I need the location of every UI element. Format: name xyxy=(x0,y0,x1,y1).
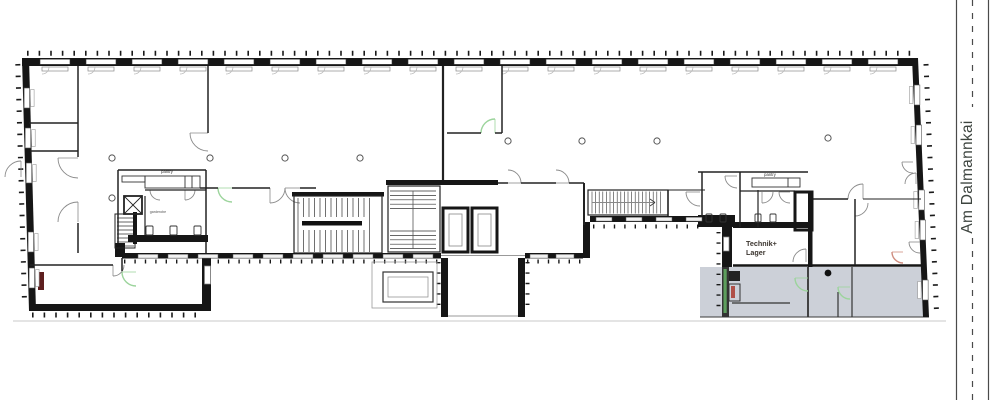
window xyxy=(592,59,622,64)
window-sill xyxy=(318,67,344,71)
window-sill xyxy=(870,67,896,71)
skylight-table xyxy=(383,272,433,302)
window xyxy=(270,59,300,64)
pantry-counter xyxy=(752,178,800,187)
window-sill xyxy=(31,90,35,107)
door-swing-arc xyxy=(556,170,569,183)
hedge-strip xyxy=(724,269,727,313)
window xyxy=(724,237,730,251)
wc-fixture xyxy=(194,226,201,235)
street-strip: Am Dalmannkai xyxy=(957,0,989,400)
street-name-label: Am Dalmannkai xyxy=(959,120,976,233)
stair-treads xyxy=(117,191,660,252)
window xyxy=(919,190,925,210)
window xyxy=(822,59,852,64)
pantry-label-right: pantry xyxy=(764,172,777,177)
floor-plan: pantry garderobe pantry Technik+ Lager A… xyxy=(0,0,1000,400)
light-court xyxy=(372,258,525,317)
window-sill xyxy=(824,67,850,71)
door-swing-arc xyxy=(909,242,920,253)
door-swing-arc xyxy=(779,192,790,203)
window xyxy=(684,59,714,64)
elevator-core-left xyxy=(124,196,142,214)
window xyxy=(638,59,668,64)
window-sill xyxy=(33,165,37,182)
window-sill xyxy=(548,67,574,71)
window xyxy=(28,232,34,252)
door-swing-arc xyxy=(762,192,773,203)
window-sill xyxy=(502,67,528,71)
column xyxy=(109,195,115,201)
door-swing-arc xyxy=(122,272,136,286)
column xyxy=(207,155,213,161)
window-sill xyxy=(36,270,40,287)
wall-jog xyxy=(583,222,590,258)
window xyxy=(500,59,530,64)
window-sill xyxy=(456,67,482,71)
door-swing-arc xyxy=(686,192,700,206)
door-swing-arc xyxy=(793,249,806,262)
window-sill xyxy=(323,254,343,258)
door-swing-arc xyxy=(725,176,737,188)
window-sill xyxy=(918,282,922,299)
window-sill xyxy=(778,67,804,71)
door-swing-arc xyxy=(892,252,903,263)
column xyxy=(282,155,288,161)
window xyxy=(868,59,898,64)
window-sill xyxy=(911,127,915,144)
window-sill xyxy=(233,254,253,258)
wc-fixture xyxy=(170,226,177,235)
column xyxy=(654,138,660,144)
door-swing-arc xyxy=(190,133,208,151)
window-sill xyxy=(42,67,68,71)
door-swing-arc xyxy=(58,158,78,178)
window-sill xyxy=(383,254,403,258)
window xyxy=(25,128,31,148)
wc-fixture xyxy=(146,226,153,235)
door-swing-arc xyxy=(58,202,78,222)
window-sill xyxy=(134,67,160,71)
door-swing-arc xyxy=(481,119,495,133)
red-marker xyxy=(731,286,735,298)
window xyxy=(316,59,346,64)
window xyxy=(86,59,116,64)
window xyxy=(776,59,806,64)
window xyxy=(224,59,254,64)
window-sill xyxy=(226,67,252,71)
window-sill xyxy=(556,254,574,258)
window-sill xyxy=(198,254,218,258)
door-swing-arc xyxy=(508,170,521,183)
door-swing-arc xyxy=(902,162,913,173)
window-sill xyxy=(138,254,158,258)
window-sill xyxy=(640,67,666,71)
window-sill xyxy=(263,254,283,258)
column xyxy=(825,135,831,141)
door-swing-arc xyxy=(905,173,916,184)
window-sill xyxy=(915,222,919,239)
window-sill xyxy=(594,67,620,71)
window xyxy=(923,280,929,300)
column xyxy=(109,155,115,161)
stair-arrow xyxy=(650,199,655,203)
window-sill xyxy=(732,67,758,71)
window xyxy=(454,59,484,64)
window-sill xyxy=(88,67,114,71)
core-wall-band xyxy=(128,235,208,242)
door-swing-arc xyxy=(218,188,232,202)
window xyxy=(914,85,920,105)
door-swing-arc xyxy=(855,203,868,216)
window-sill xyxy=(32,130,36,147)
column-dot xyxy=(825,270,832,277)
stair-stringer xyxy=(302,221,362,226)
window-sill xyxy=(686,67,712,71)
window xyxy=(205,266,211,284)
window xyxy=(730,59,760,64)
window xyxy=(132,59,162,64)
window xyxy=(26,163,32,183)
window-sill xyxy=(909,87,913,104)
column xyxy=(579,138,585,144)
technik-lager-label: Lager xyxy=(746,248,766,257)
column xyxy=(505,138,511,144)
elevator-shafts-center xyxy=(443,208,497,252)
window xyxy=(546,59,576,64)
window-sill xyxy=(914,192,918,209)
window-band xyxy=(24,59,928,300)
window-sill xyxy=(35,234,39,251)
window-sill xyxy=(364,67,390,71)
window xyxy=(24,88,30,108)
window-sill xyxy=(596,217,612,221)
window xyxy=(29,268,35,288)
door-swing-arc xyxy=(270,188,285,203)
window-sill xyxy=(530,254,548,258)
core-wall-band xyxy=(115,243,125,257)
terrace-box xyxy=(729,271,740,281)
terrace-area xyxy=(700,266,929,318)
window-sill xyxy=(626,217,642,221)
window-sill xyxy=(656,217,672,221)
window-sill xyxy=(168,254,188,258)
stair-arrow xyxy=(650,203,655,207)
pantry-label-left: pantry xyxy=(161,169,174,174)
structural-columns xyxy=(109,135,831,201)
door-swing-arc xyxy=(185,190,195,200)
window-sill xyxy=(413,254,433,258)
window-sill xyxy=(353,254,373,258)
door-swing-arc xyxy=(150,190,160,200)
window xyxy=(362,59,392,64)
window-sill xyxy=(686,217,702,221)
window xyxy=(916,125,922,145)
window-sill xyxy=(293,254,313,258)
technik-lager-label: Technik+ xyxy=(746,239,777,248)
bottom-wall-left xyxy=(29,304,209,311)
window-sill xyxy=(180,67,206,71)
window xyxy=(40,59,70,64)
technik-top-wall xyxy=(733,222,812,228)
cloakroom-label: garderobe xyxy=(150,210,166,214)
window xyxy=(178,59,208,64)
wc-fixture xyxy=(770,214,776,222)
window xyxy=(920,220,926,240)
window-sill xyxy=(272,67,298,71)
column xyxy=(357,155,363,161)
window xyxy=(408,59,438,64)
window-sill xyxy=(410,67,436,71)
wall-junction xyxy=(698,215,735,227)
door-swing-arc xyxy=(848,184,863,199)
